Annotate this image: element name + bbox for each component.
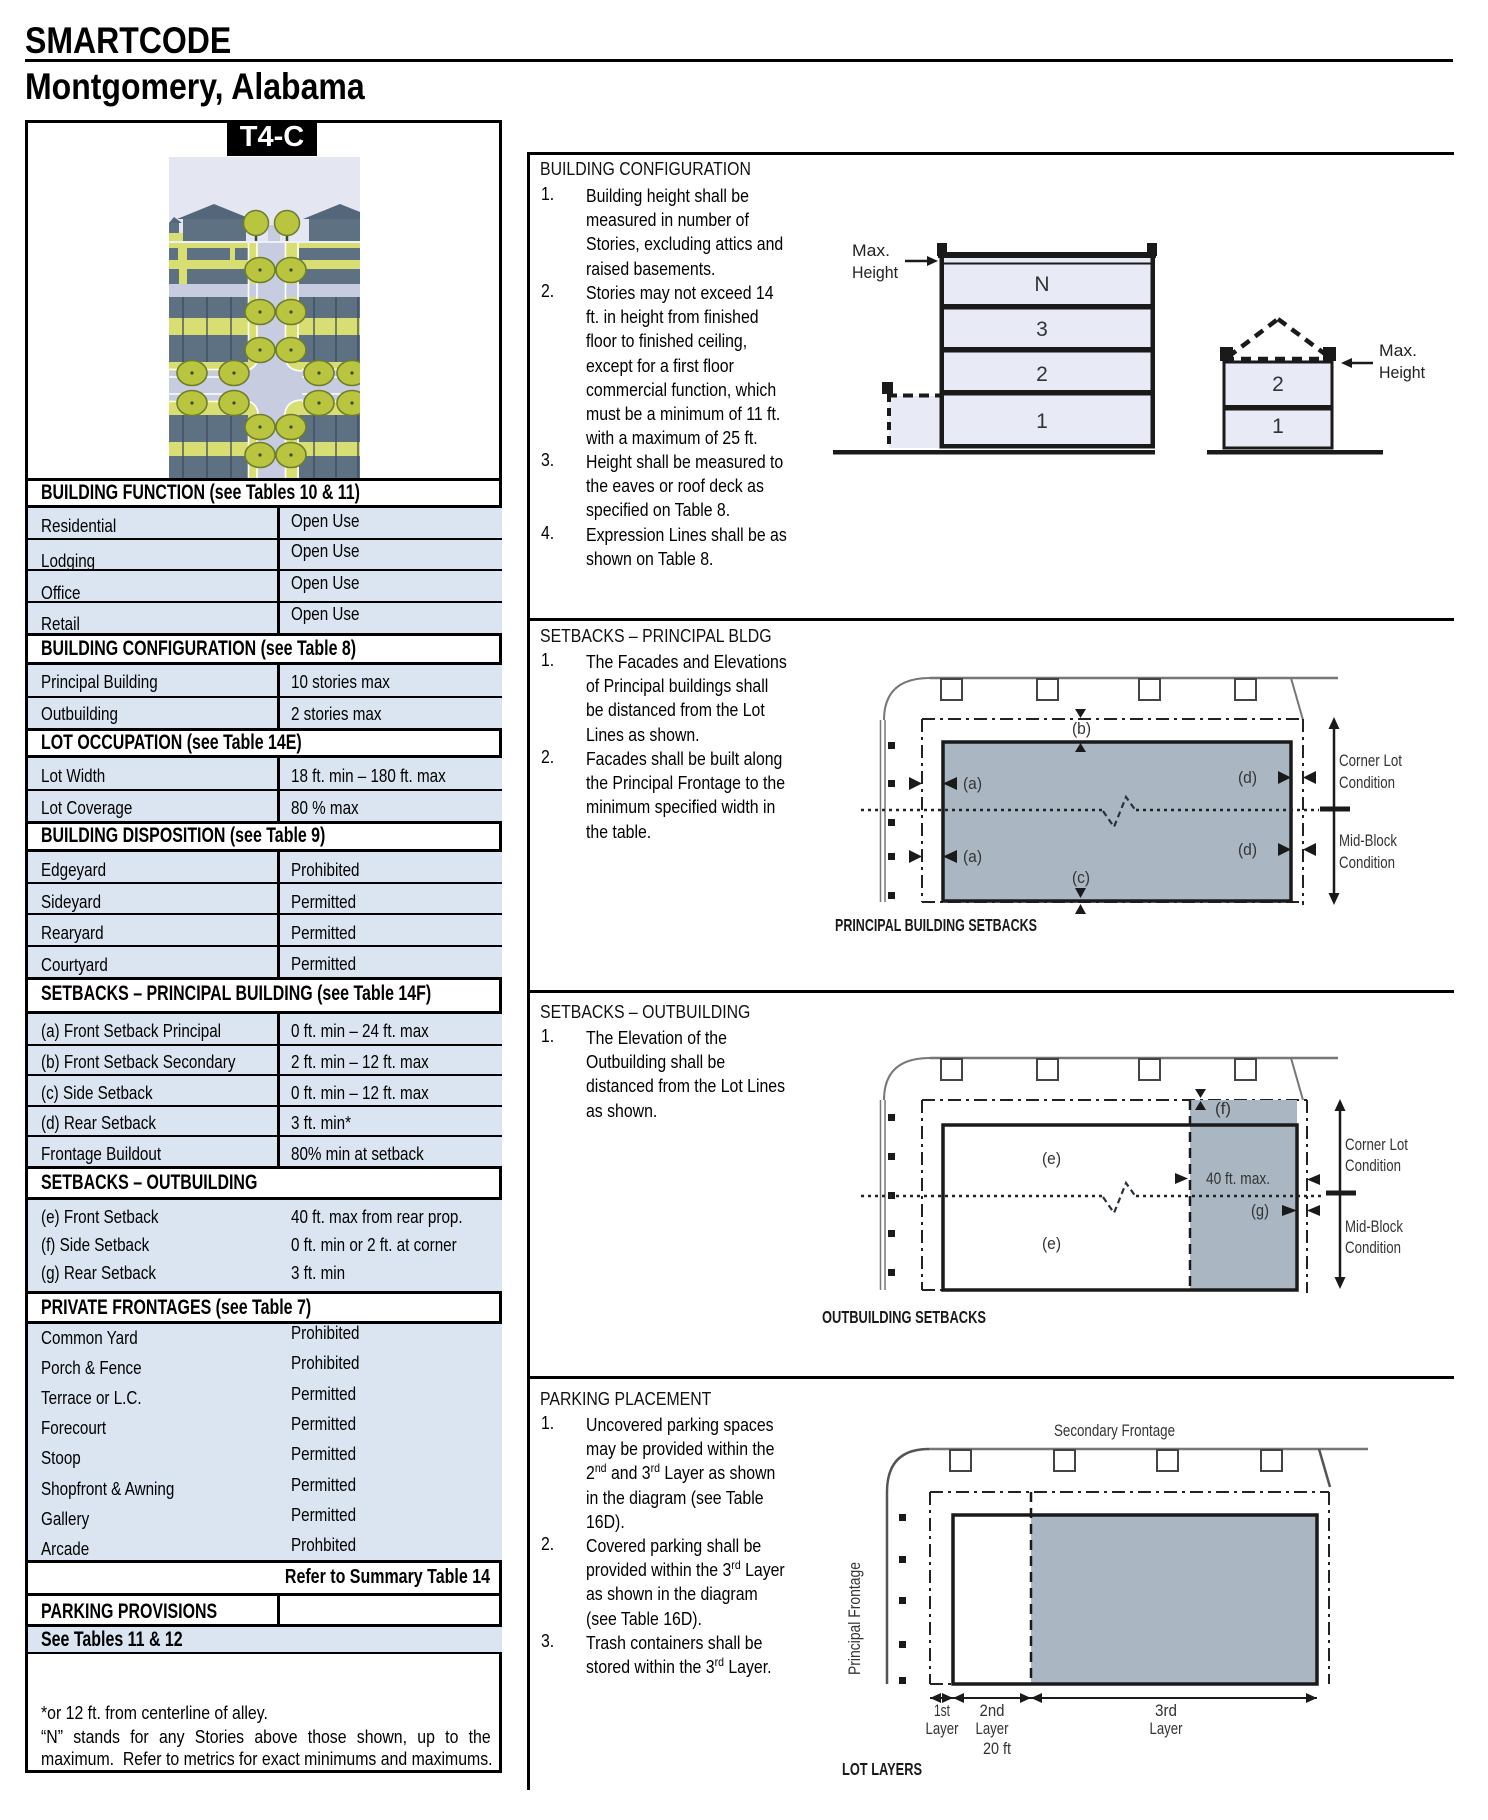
- svg-text:Mid-Block: Mid-Block: [1339, 832, 1398, 850]
- svg-text:Condition: Condition: [1345, 1239, 1401, 1257]
- svg-text:Secondary Frontage: Secondary Frontage: [1054, 1422, 1175, 1440]
- svg-text:N: N: [1034, 273, 1049, 296]
- svg-text:(e): (e): [1042, 1235, 1061, 1253]
- svg-text:(b): (b): [1072, 720, 1091, 738]
- svg-text:40 ft. max.: 40 ft. max.: [1206, 1170, 1270, 1188]
- svg-text:1: 1: [1036, 410, 1048, 433]
- svg-text:2: 2: [1036, 363, 1048, 386]
- svg-text:PRINCIPAL BUILDING SETBACKS: PRINCIPAL BUILDING SETBACKS: [835, 915, 1037, 935]
- svg-text:2nd: 2nd: [980, 1702, 1005, 1720]
- svg-text:1st: 1st: [934, 1702, 950, 1720]
- svg-text:Max.: Max.: [852, 241, 890, 260]
- svg-text:3rd: 3rd: [1155, 1702, 1177, 1720]
- svg-text:(a): (a): [963, 775, 982, 793]
- svg-text:Mid-Block: Mid-Block: [1345, 1218, 1404, 1236]
- svg-text:Height: Height: [1379, 363, 1425, 382]
- svg-text:Layer: Layer: [1150, 1720, 1183, 1738]
- svg-text:Max.: Max.: [1379, 341, 1417, 360]
- svg-text:(c): (c): [1072, 869, 1090, 887]
- svg-text:(e): (e): [1042, 1150, 1061, 1168]
- svg-text:2: 2: [1272, 373, 1284, 396]
- svg-text:Condition: Condition: [1345, 1157, 1401, 1175]
- svg-text:Height: Height: [852, 263, 898, 282]
- svg-text:20 ft: 20 ft: [983, 1740, 1011, 1758]
- svg-text:Corner Lot: Corner Lot: [1339, 752, 1402, 770]
- svg-text:Condition: Condition: [1339, 774, 1395, 792]
- svg-text:Layer: Layer: [976, 1720, 1009, 1738]
- svg-text:1: 1: [1272, 415, 1284, 438]
- svg-text:(a): (a): [963, 848, 982, 866]
- svg-text:(f): (f): [1215, 1100, 1231, 1118]
- svg-text:LOT LAYERS: LOT LAYERS: [842, 1759, 922, 1779]
- svg-text:Corner Lot: Corner Lot: [1345, 1136, 1408, 1154]
- svg-text:Layer: Layer: [926, 1720, 959, 1738]
- svg-text:OUTBUILDING SETBACKS: OUTBUILDING SETBACKS: [822, 1307, 986, 1327]
- svg-text:Principal Frontage: Principal Frontage: [846, 1562, 864, 1675]
- svg-text:(d): (d): [1238, 769, 1257, 787]
- svg-text:Condition: Condition: [1339, 854, 1395, 872]
- svg-text:3: 3: [1036, 318, 1048, 341]
- svg-text:(g): (g): [1251, 1202, 1269, 1220]
- svg-text:(d): (d): [1238, 841, 1257, 859]
